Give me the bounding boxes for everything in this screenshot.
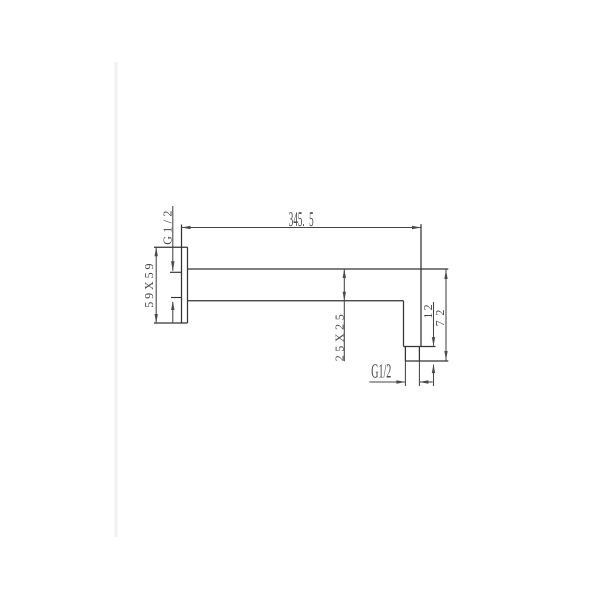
svg-text:25X25: 25X25 (333, 311, 347, 362)
svg-text:G1/2: G1/2 (371, 361, 391, 383)
svg-text:72: 72 (433, 305, 447, 327)
svg-text:345. 5: 345. 5 (289, 207, 314, 231)
svg-text:G1/2: G1/2 (160, 207, 174, 245)
svg-text:59X59: 59X59 (142, 261, 156, 308)
